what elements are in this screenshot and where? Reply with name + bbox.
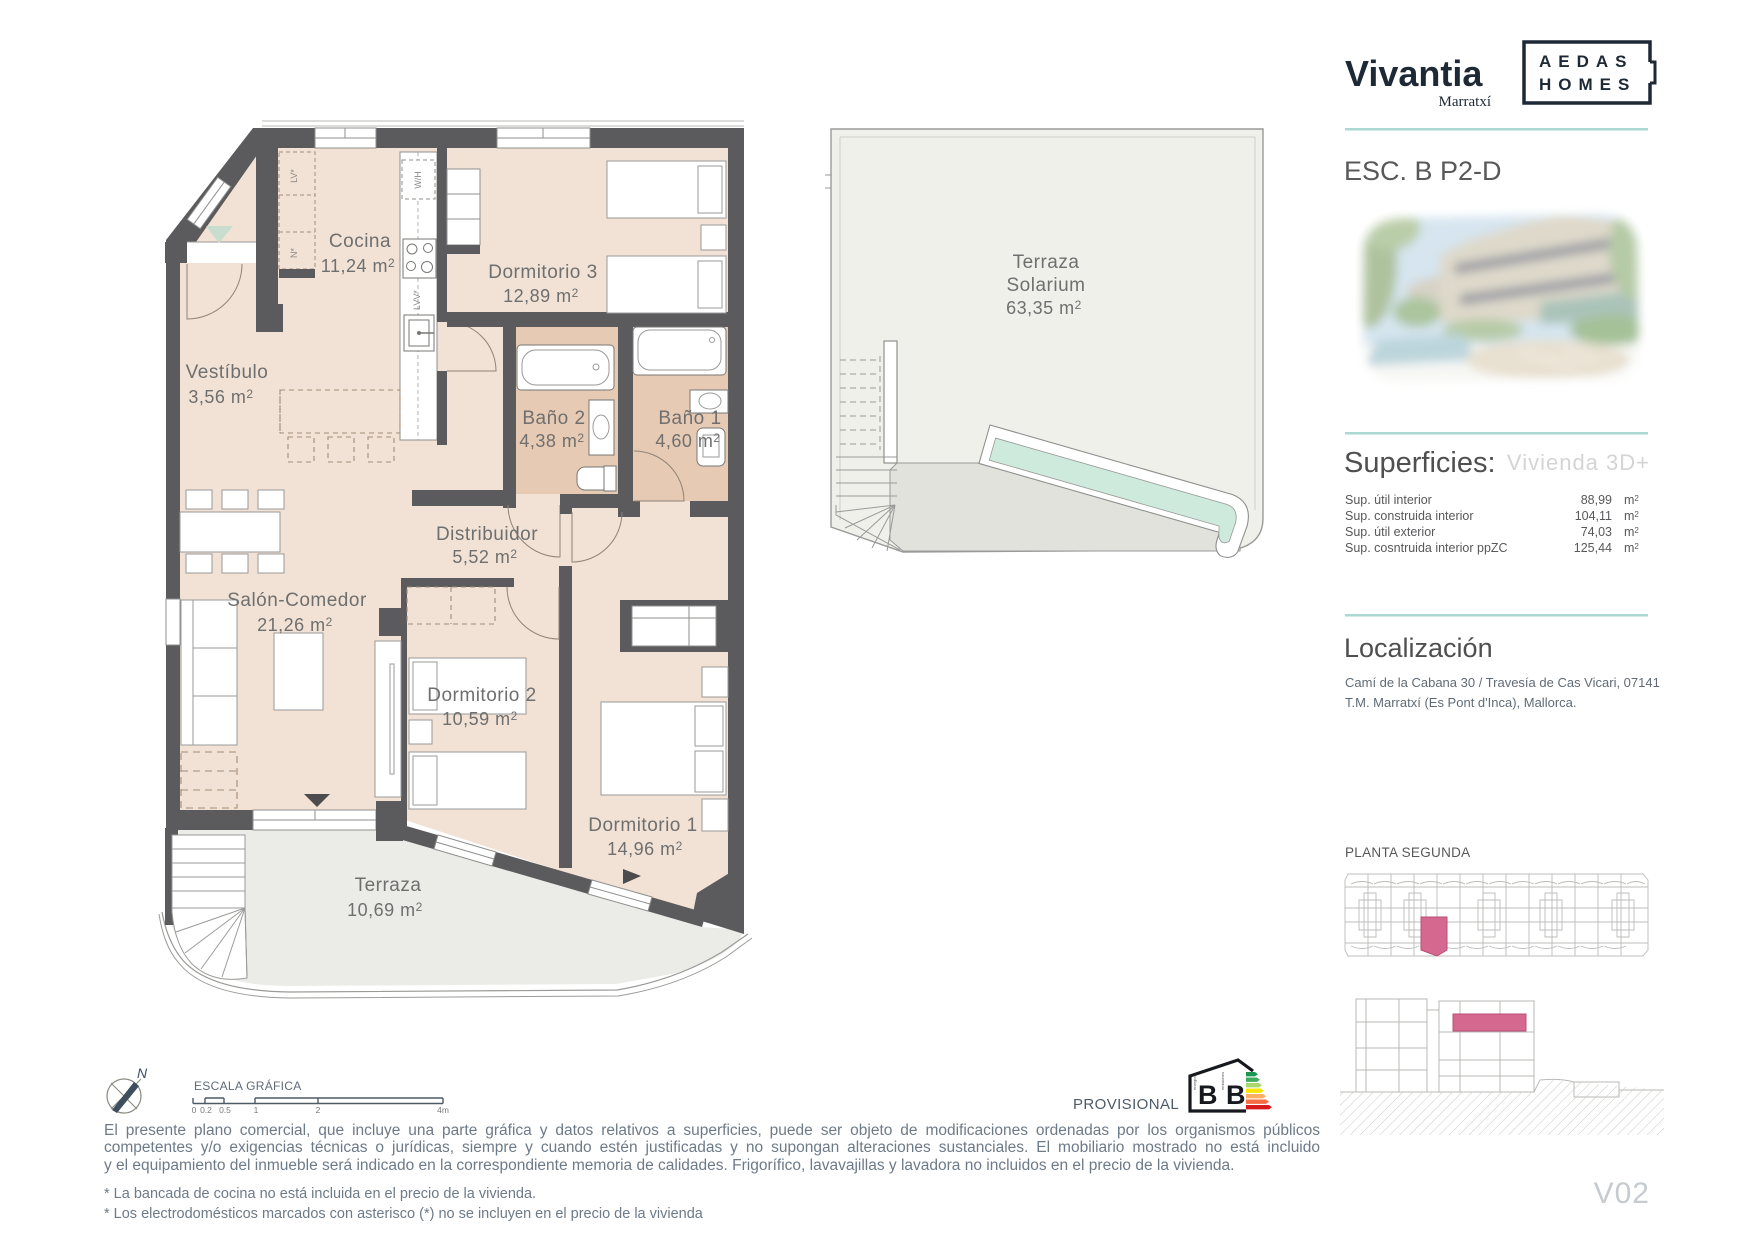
svg-text:63,35 m2: 63,35 m2 bbox=[1006, 298, 1082, 318]
svg-text:10,69 m2: 10,69 m2 bbox=[347, 900, 423, 920]
svg-text:N: N bbox=[137, 1065, 148, 1081]
svg-text:energía: energía bbox=[1192, 1076, 1197, 1090]
svg-text:Terraza: Terraza bbox=[355, 875, 422, 896]
svg-text:ESC. B P2-D: ESC. B P2-D bbox=[1344, 156, 1502, 186]
svg-text:3,56 m2: 3,56 m2 bbox=[188, 387, 253, 407]
svg-text:Sup. útil interior: Sup. útil interior bbox=[1345, 493, 1432, 507]
svg-text:HOMES: HOMES bbox=[1539, 75, 1636, 94]
svg-text:Cocina: Cocina bbox=[329, 231, 391, 252]
svg-text:AEDAS: AEDAS bbox=[1539, 52, 1634, 71]
svg-text:N*: N* bbox=[289, 248, 299, 258]
svg-text:m2: m2 bbox=[1624, 525, 1639, 539]
svg-text:Marratxí: Marratxí bbox=[1439, 94, 1491, 110]
svg-text:B: B bbox=[1226, 1080, 1246, 1110]
svg-text:4,60 m2: 4,60 m2 bbox=[655, 431, 720, 451]
svg-text:Solarium: Solarium bbox=[1007, 275, 1086, 296]
svg-text:Distribuidor: Distribuidor bbox=[436, 524, 538, 545]
svg-text:Vestíbulo: Vestíbulo bbox=[186, 362, 269, 383]
svg-text:m2: m2 bbox=[1624, 493, 1639, 507]
svg-text:Superficies:: Superficies: bbox=[1344, 447, 1496, 479]
svg-text:5,52 m2: 5,52 m2 bbox=[452, 547, 517, 567]
svg-text:Vivienda 3D+: Vivienda 3D+ bbox=[1507, 450, 1650, 475]
svg-text:4m: 4m bbox=[437, 1105, 449, 1115]
svg-text:Baño 2: Baño 2 bbox=[522, 408, 585, 429]
svg-text:B: B bbox=[1198, 1080, 1218, 1110]
svg-text:m2: m2 bbox=[1624, 541, 1639, 555]
svg-text:88,99: 88,99 bbox=[1581, 493, 1612, 507]
svg-text:LVV*: LVV* bbox=[412, 290, 422, 310]
svg-text:T.M. Marratxí (Es Pont d'Inca): T.M. Marratxí (Es Pont d'Inca), Mallorca… bbox=[1345, 695, 1577, 710]
svg-text:Dormitorio 1: Dormitorio 1 bbox=[588, 815, 697, 836]
svg-text:Vivantia: Vivantia bbox=[1345, 53, 1483, 94]
svg-text:74,03: 74,03 bbox=[1581, 525, 1612, 539]
svg-text:Salón-Comedor: Salón-Comedor bbox=[227, 590, 367, 611]
svg-text:0: 0 bbox=[192, 1105, 197, 1115]
svg-text:21,26 m2: 21,26 m2 bbox=[257, 615, 333, 635]
svg-text:14,96 m2: 14,96 m2 bbox=[607, 839, 683, 859]
svg-text:Sup. construida interior: Sup. construida interior bbox=[1345, 509, 1474, 523]
svg-text:Sup. útil exterior: Sup. útil exterior bbox=[1345, 525, 1435, 539]
svg-text:Dormitorio 3: Dormitorio 3 bbox=[488, 262, 597, 283]
svg-text:emisiones: emisiones bbox=[1220, 1072, 1225, 1090]
svg-text:Sup. cosntruida interior ppZC: Sup. cosntruida interior ppZC bbox=[1345, 541, 1508, 555]
svg-text:Terraza: Terraza bbox=[1013, 252, 1080, 273]
svg-text:0.5: 0.5 bbox=[219, 1105, 231, 1115]
svg-text:PLANTA SEGUNDA: PLANTA SEGUNDA bbox=[1345, 845, 1470, 860]
svg-text:V02: V02 bbox=[1594, 1177, 1650, 1210]
svg-text:Camí de la Cabana 30 / Travesí: Camí de la Cabana 30 / Travesía de Cas V… bbox=[1345, 675, 1660, 690]
svg-text:2: 2 bbox=[316, 1105, 321, 1115]
svg-text:1: 1 bbox=[254, 1105, 259, 1115]
svg-text:11,24 m2: 11,24 m2 bbox=[321, 256, 395, 276]
svg-text:W/H: W/H bbox=[413, 171, 423, 189]
svg-text:12,89 m2: 12,89 m2 bbox=[503, 286, 579, 306]
svg-text:Localización: Localización bbox=[1344, 633, 1493, 663]
svg-text:PROVISIONAL: PROVISIONAL bbox=[1073, 1096, 1179, 1113]
svg-text:104,11: 104,11 bbox=[1575, 509, 1612, 523]
svg-text:Dormitorio 2: Dormitorio 2 bbox=[427, 685, 536, 706]
svg-text:Baño 1: Baño 1 bbox=[658, 408, 721, 429]
svg-text:0.2: 0.2 bbox=[200, 1105, 212, 1115]
svg-text:10,59 m2: 10,59 m2 bbox=[442, 709, 518, 729]
svg-text:LV*: LV* bbox=[289, 169, 299, 183]
svg-text:125,44: 125,44 bbox=[1574, 541, 1612, 555]
svg-text:m2: m2 bbox=[1624, 509, 1639, 523]
svg-text:ESCALA GRÁFICA: ESCALA GRÁFICA bbox=[194, 1078, 302, 1093]
svg-text:4,38 m2: 4,38 m2 bbox=[519, 431, 584, 451]
